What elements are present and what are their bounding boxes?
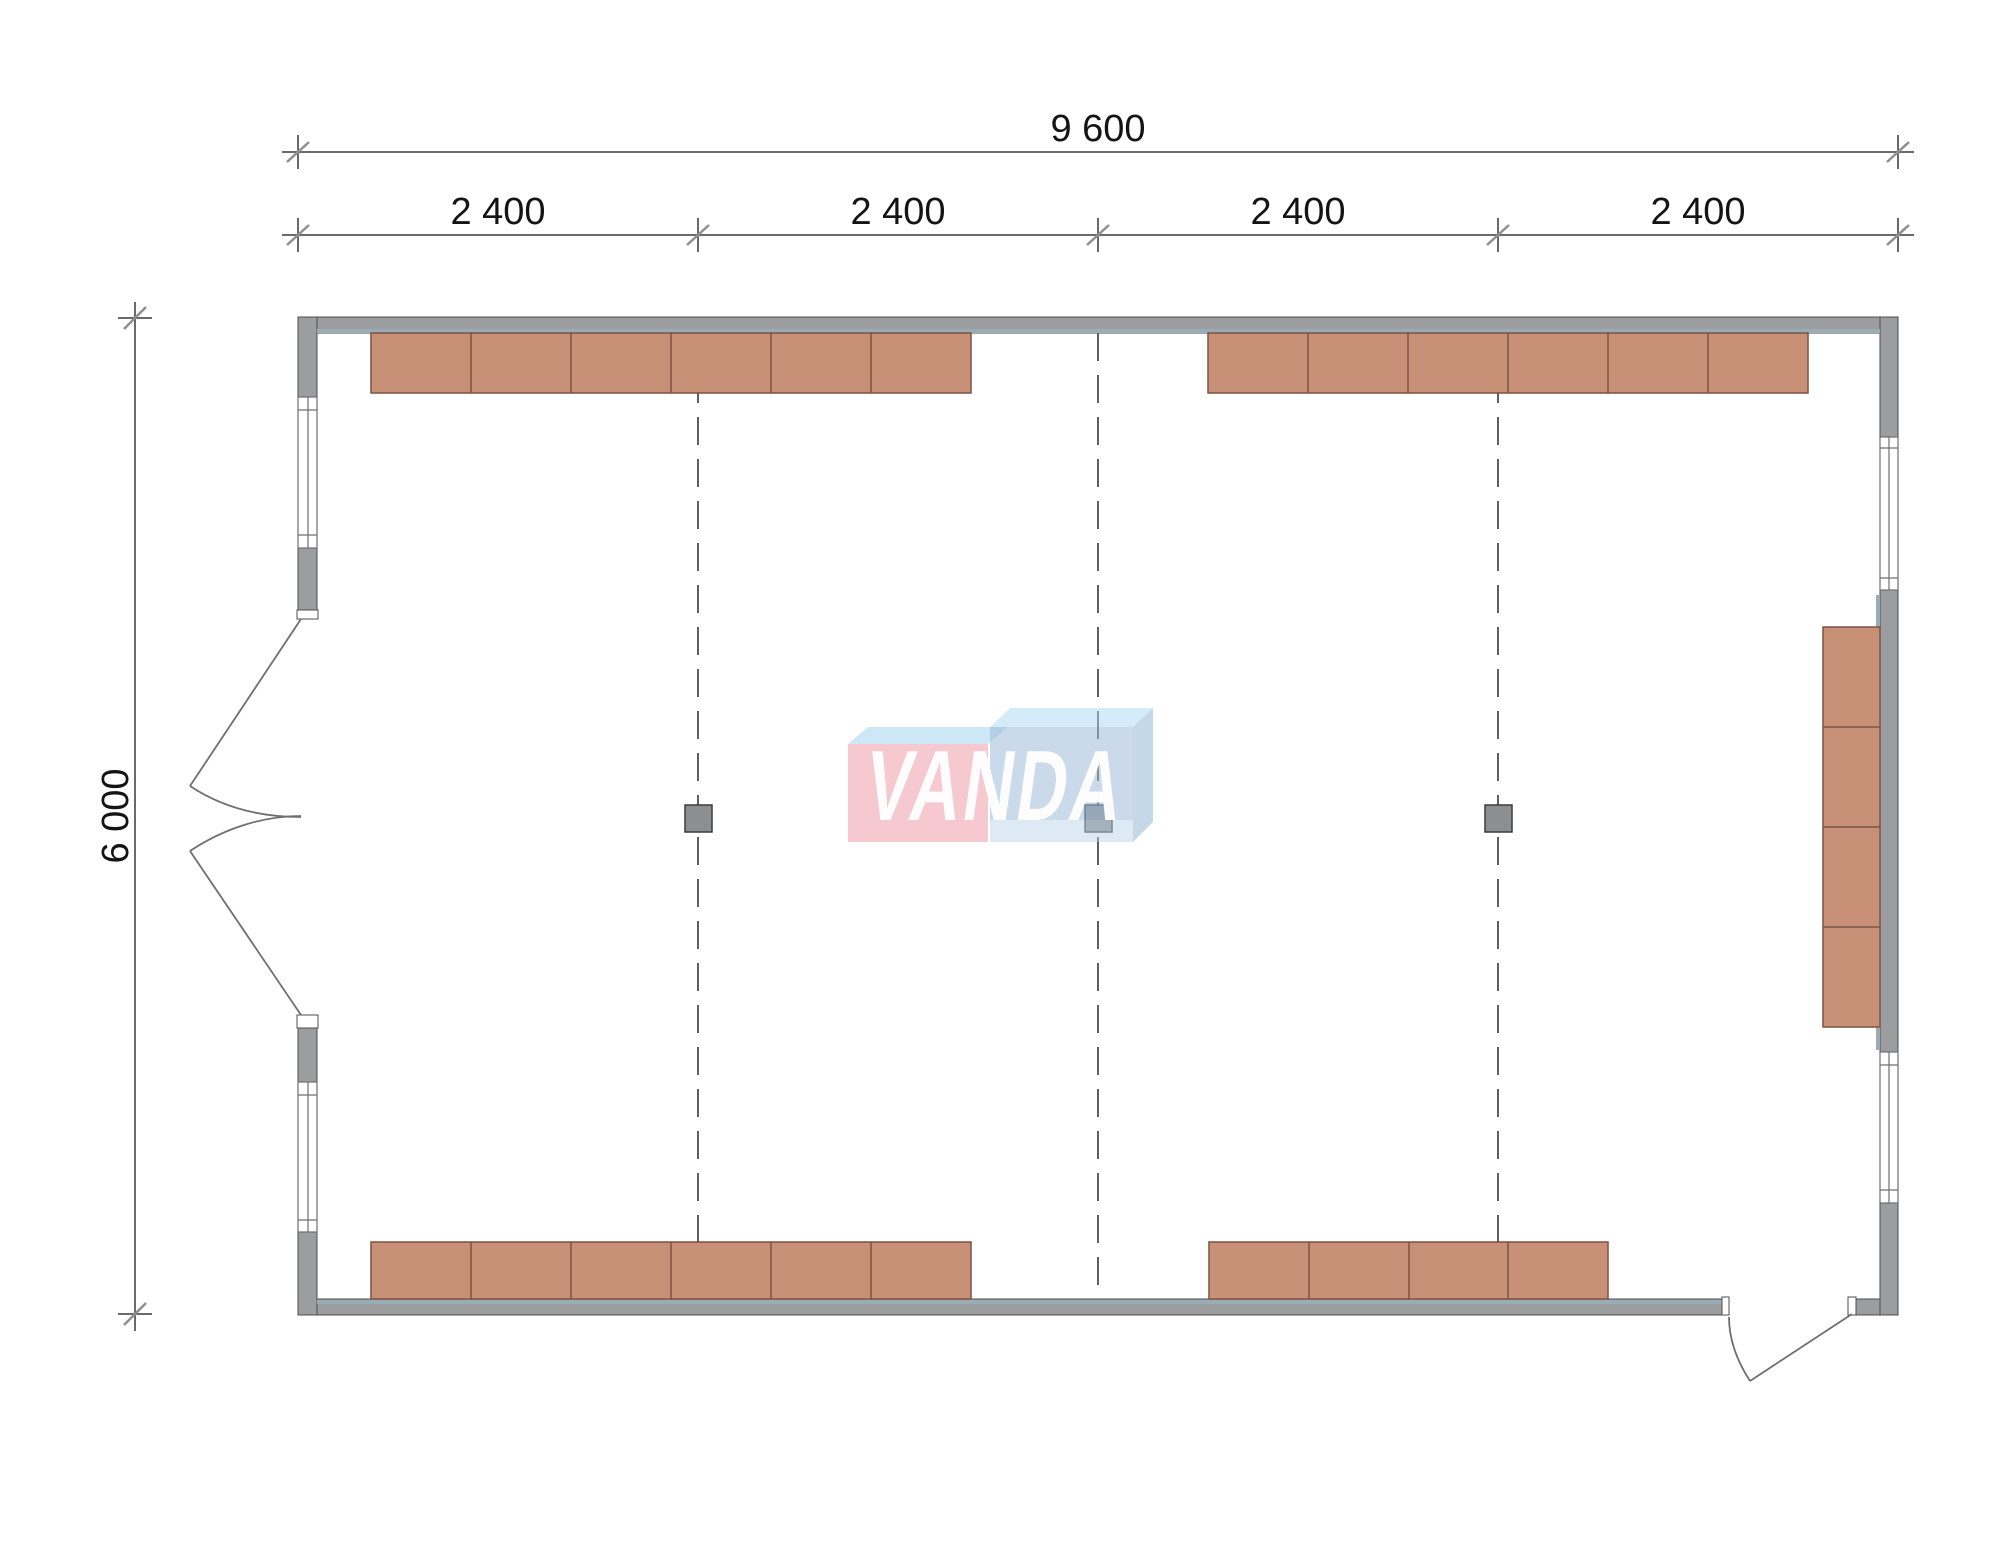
left-wall-pier-3 [298, 1028, 317, 1082]
left-door-leaf-top [190, 619, 301, 786]
cabinet-run-bottom-right [1209, 1242, 1608, 1299]
dimension-segments: 2 400 2 400 2 400 2 400 [282, 191, 1914, 252]
cabinet-run-top-left [371, 333, 971, 393]
segment-label-4: 2 400 [1650, 191, 1745, 233]
column-1 [685, 805, 712, 832]
cabinet-run-right-wall [1823, 627, 1880, 1027]
logo-blue-cube-top-face [990, 708, 1153, 727]
left-door-bottom-jamb [297, 1015, 318, 1028]
left-door-arc-top [190, 786, 301, 817]
floor-plan-page: 9 600 2 400 2 400 2 400 2 400 6 000 [0, 0, 2000, 1550]
left-window-lower [298, 1082, 317, 1232]
dimension-height: 6 000 [95, 302, 152, 1331]
right-wall-pier-3 [1880, 1203, 1898, 1315]
height-label: 6 000 [95, 768, 137, 863]
bottom-door-arc [1729, 1317, 1750, 1381]
segment-label-1: 2 400 [450, 191, 545, 233]
left-wall-pier-1 [298, 317, 317, 397]
left-door-arc-bottom [190, 816, 301, 851]
right-window-lower [1880, 1052, 1898, 1203]
left-door-leaf-bottom [190, 851, 301, 1015]
total-width-label: 9 600 [1050, 108, 1145, 150]
bottom-door-leaf [1750, 1314, 1852, 1381]
watermark-text: VANDA [859, 730, 1132, 842]
floor-plan-drawing: 9 600 2 400 2 400 2 400 2 400 6 000 [0, 0, 2000, 1550]
left-door-top-jamb [297, 610, 318, 619]
bottom-door-left-jamb [1722, 1297, 1729, 1315]
segment-label-2: 2 400 [850, 191, 945, 233]
left-wall-pier-2 [298, 548, 317, 610]
column-3 [1485, 805, 1512, 832]
bottom-right-door [1722, 1297, 1856, 1381]
right-wall-pier-2 [1880, 590, 1898, 1052]
left-double-door [190, 610, 318, 1028]
right-window-upper [1880, 437, 1898, 590]
dimension-total-width: 9 600 [282, 108, 1914, 169]
bottom-door-right-jamb [1848, 1297, 1856, 1315]
left-wall-pier-4 [298, 1232, 317, 1315]
bottom-wall-lining [317, 1300, 1722, 1304]
cabinet-run-bottom-left [371, 1242, 971, 1299]
right-wall-pier-1 [1880, 317, 1898, 437]
cabinet-run-top-right [1208, 333, 1808, 393]
left-window-upper [298, 397, 317, 548]
logo-blue-cube-side-face [1133, 708, 1153, 842]
segment-label-3: 2 400 [1250, 191, 1345, 233]
watermark-logo: VANDA [848, 708, 1153, 842]
